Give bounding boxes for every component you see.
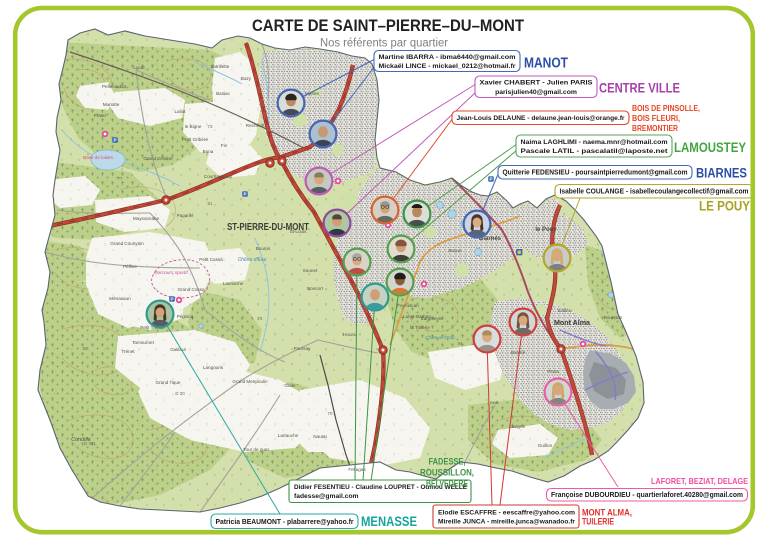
svg-text:Ané: Ané <box>490 400 499 405</box>
svg-text:D 30: D 30 <box>175 391 185 396</box>
svg-text:LAMOUSTEY: LAMOUSTEY <box>674 140 746 155</box>
svg-text:Mireille JUNCA - mireille.junc: Mireille JUNCA - mireille.junca@wanadoo.… <box>438 519 575 526</box>
svg-text:Isabelle COULANGE - isabelleco: Isabelle COULANGE - isabellecoulangecoll… <box>560 189 749 196</box>
svg-text:TUILERIE: TUILERIE <box>582 517 614 527</box>
svg-text:Mariotte: Mariotte <box>103 102 120 107</box>
svg-text:Tamournet: Tamournet <box>132 340 154 345</box>
svg-text:Petit Gribère: Petit Gribère <box>182 137 208 142</box>
svg-text:Mont Alma: Mont Alma <box>554 318 591 327</box>
svg-text:Gude: Gude <box>284 383 296 388</box>
svg-text:P: P <box>243 192 246 197</box>
svg-text:le Pouy: le Pouy <box>535 227 557 233</box>
svg-text:Laurianne: Laurianne <box>223 281 244 286</box>
svg-text:77: 77 <box>118 176 123 181</box>
svg-text:Jean-Louis DELAUNE - delaune.j: Jean-Louis DELAUNE - delaune.jean-louis@… <box>457 115 625 122</box>
svg-text:CENTRE VILLE: CENTRE VILLE <box>599 81 680 96</box>
svg-text:Langouris: Langouris <box>203 365 224 370</box>
svg-text:Pascale LATIL - pascalatil@lap: Pascale LATIL - pascalatil@laposte.net <box>521 148 669 155</box>
svg-text:81: 81 <box>208 201 213 206</box>
svg-text:Grand l'Ique: Grand l'Ique <box>156 380 181 385</box>
svg-text:70: 70 <box>328 411 333 416</box>
svg-text:MENASSE: MENASSE <box>361 514 417 529</box>
svg-text:BOIS FLEURI,: BOIS FLEURI, <box>632 113 680 123</box>
svg-text:Quitterie FEDENSIEU - poursain: Quitterie FEDENSIEU - poursaintpierredum… <box>503 170 688 177</box>
svg-text:Bourns: Bourns <box>256 246 271 251</box>
svg-text:Pellecaubat: Pellecaubat <box>102 84 127 89</box>
svg-text:P: P <box>113 138 116 143</box>
svg-text:Château d'Eau: Château d'Eau <box>425 335 455 340</box>
svg-text:Martine IBARRA - ibma6440@gmai: Martine IBARRA - ibma6440@gmail.com <box>379 54 516 61</box>
svg-text:Largeleyre: Largeleyre <box>421 316 443 321</box>
svg-text:Lavigne: Lavigne <box>509 424 526 429</box>
svg-text:Françoise DUBOURDIEU - quartie: Françoise DUBOURDIEU - quartierlaforet.4… <box>551 492 743 499</box>
svg-text:Base de loisirs: Base de loisirs <box>83 155 114 160</box>
svg-text:Bazy: Bazy <box>241 76 252 81</box>
svg-text:Plusa: Plusa <box>547 369 559 374</box>
svg-text:Grand Counynin: Grand Counynin <box>110 241 144 246</box>
svg-text:Nautat: Nautat <box>313 434 327 439</box>
svg-text:Ménasaun: Ménasaun <box>109 296 131 301</box>
svg-text:Buna: Buna <box>203 149 214 154</box>
svg-text:Fin: Fin <box>221 143 228 148</box>
svg-text:Laliot: Laliot <box>175 109 187 114</box>
svg-text:Baziac: Baziac <box>216 91 230 96</box>
svg-text:83: 83 <box>83 346 88 351</box>
svg-text:Frater: Frater <box>94 113 107 118</box>
svg-text:Beque: Beque <box>448 248 462 253</box>
svg-text:Tour de guet: Tour de guet <box>243 447 269 452</box>
svg-text:Sounet: Sounet <box>303 268 318 273</box>
svg-text:Mickaël LINCE - mickael_0212@h: Mickaël LINCE - mickael_0212@hotmail.fr <box>379 63 516 70</box>
svg-text:Saillès: Saillès <box>557 308 571 313</box>
svg-text:Chêne d'Eau: Chêne d'Eau <box>238 257 267 263</box>
svg-text:LAFORET, BEZIAT, DELAGE: LAFORET, BEZIAT, DELAGE <box>651 476 748 486</box>
svg-text:BREMONTIER: BREMONTIER <box>632 123 679 133</box>
svg-text:ST-PIERRE-DU-MONT: ST-PIERRE-DU-MONT <box>227 222 309 233</box>
svg-text:Rechède: Rechède <box>246 123 265 128</box>
svg-text:Pélline: Pélline <box>123 264 137 269</box>
svg-text:Guillon: Guillon <box>538 443 553 448</box>
svg-text:84: 84 <box>458 341 463 346</box>
svg-text:la Tuilerie: la Tuilerie <box>410 325 430 330</box>
svg-text:Maysonnabe: Maysonnabe <box>133 216 160 221</box>
svg-text:le Bigne: le Bigne <box>185 124 202 129</box>
svg-text:Poursay: Poursay <box>294 346 312 351</box>
svg-text:Batché: Batché <box>511 350 526 355</box>
svg-text:parisjulien40@gmail.com: parisjulien40@gmail.com <box>495 89 577 96</box>
svg-text:Grand Gribère: Grand Gribère <box>143 156 173 161</box>
svg-text:Paganel: Paganel <box>177 213 194 218</box>
svg-text:Naima LAGHLIMI - naema.mnr@hot: Naima LAGHLIMI - naema.mnr@hotmail.com <box>521 139 668 146</box>
svg-text:Elodie ESCAFFRE - eescaffre@ya: Elodie ESCAFFRE - eescaffre@yahoo.com <box>438 509 575 516</box>
svg-text:Condille: Condille <box>71 437 90 443</box>
svg-text:Patricia BEAUMONT - plabarrere: Patricia BEAUMONT - plabarrere@yahoo.fr <box>216 519 354 526</box>
svg-text:Cournasoulay: Cournasoulay <box>204 174 233 179</box>
svg-text:Trénet: Trénet <box>121 349 135 354</box>
svg-text:Grand Cosse: Grand Cosse <box>177 287 205 292</box>
svg-text:CARTE DE SAINT–PIERRE–DU–MONT: CARTE DE SAINT–PIERRE–DU–MONT <box>252 17 524 35</box>
svg-text:P: P <box>170 297 173 302</box>
svg-text:Latrillette: Latrillette <box>211 64 230 69</box>
svg-text:Pégnicq: Pégnicq <box>177 314 194 319</box>
svg-text:LE POUY: LE POUY <box>699 199 750 214</box>
svg-text:FADESSE,: FADESSE, <box>429 457 466 467</box>
svg-text:Petit Cassá: Petit Cassá <box>199 257 223 262</box>
svg-text:fadesse@gmail.com: fadesse@gmail.com <box>294 493 359 500</box>
svg-text:Lartauche: Lartauche <box>278 433 299 438</box>
svg-text:Nos référents par quartier: Nos référents par quartier <box>320 38 448 50</box>
svg-text:Catilaut: Catilaut <box>170 347 186 352</box>
svg-text:BIARNES: BIARNES <box>696 166 747 181</box>
svg-text:MANOT: MANOT <box>524 56 568 72</box>
svg-text:BOIS DE PINSOLLE,: BOIS DE PINSOLLE, <box>632 103 700 113</box>
svg-text:Feyruscan: Feyruscan <box>397 303 419 308</box>
svg-text:Parcours sportif: Parcours sportif <box>154 270 188 276</box>
svg-text:ROUSSILLON,: ROUSSILLON, <box>420 468 474 478</box>
svg-text:BELVEDERE: BELVEDERE <box>426 479 468 489</box>
svg-text:P: P <box>489 177 492 182</box>
svg-text:75: 75 <box>258 316 263 321</box>
svg-text:Hourat: Hourat <box>343 332 358 337</box>
svg-text:Boncort: Boncort <box>307 286 324 291</box>
svg-text:Lucat: Lucat <box>133 65 145 70</box>
svg-text:Xavier CHABERT - Julien PARIS: Xavier CHABERT - Julien PARIS <box>480 80 593 87</box>
svg-text:Bourstan: Bourstan <box>604 315 623 320</box>
svg-text:73: 73 <box>208 124 213 129</box>
svg-text:Grand Menpoulin: Grand Menpoulin <box>232 379 268 384</box>
